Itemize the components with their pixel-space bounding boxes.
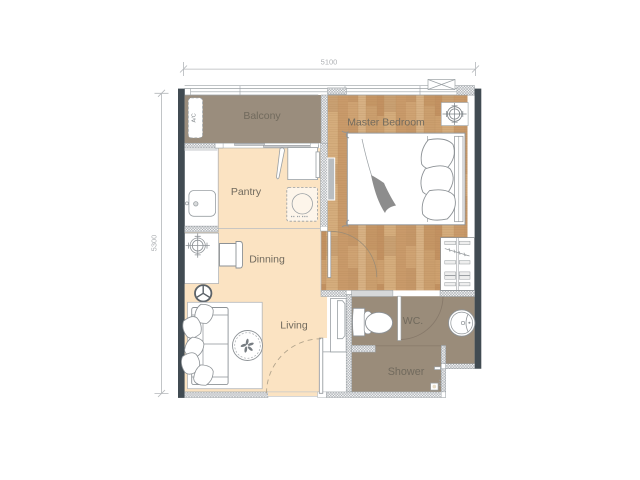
svg-text:Pantry: Pantry [231,186,262,198]
svg-text:Balcony: Balcony [243,110,281,122]
svg-text:Dinning: Dinning [249,254,285,266]
svg-text:Shower: Shower [388,366,425,378]
svg-text:5100: 5100 [321,58,338,67]
svg-text:WC.: WC. [403,315,423,327]
svg-text:Living: Living [280,320,308,332]
svg-text:A/C: A/C [191,113,197,122]
svg-text:5300: 5300 [150,235,159,252]
svg-text:Master Bedroom: Master Bedroom [347,117,425,129]
